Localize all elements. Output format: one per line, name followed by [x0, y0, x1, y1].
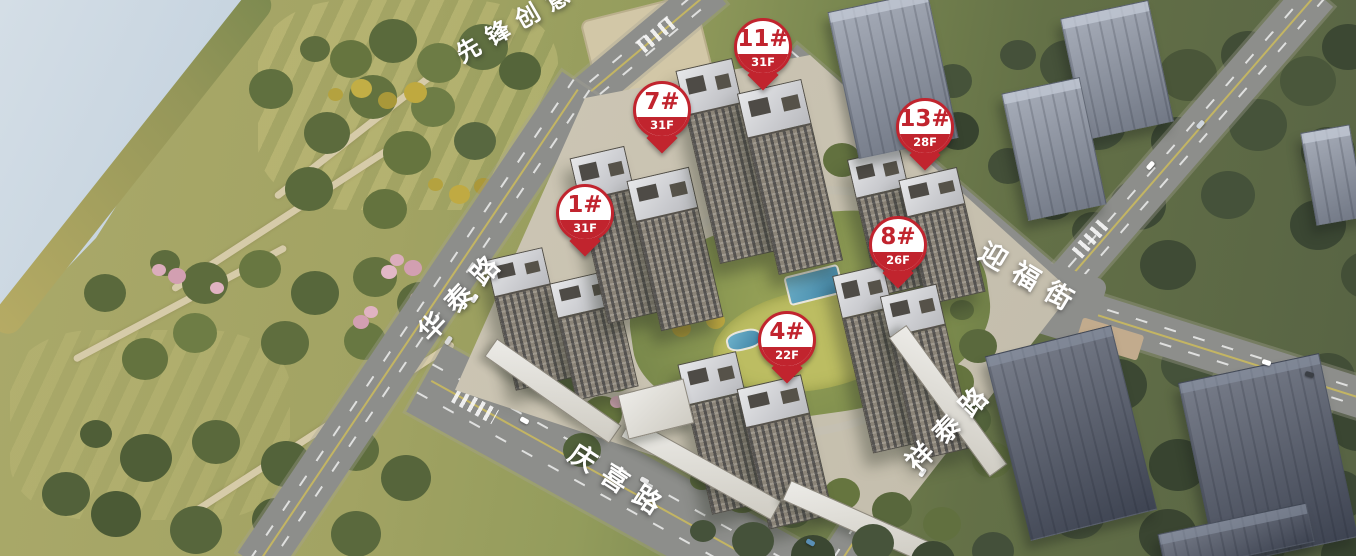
pin-building-number: 1#	[559, 193, 611, 218]
pin-head: 13# 28F	[896, 98, 954, 156]
lawn-stripes-bottom	[10, 330, 290, 520]
blossom-trees	[210, 282, 224, 294]
pin-head: 7# 31F	[633, 81, 691, 139]
building-pin-8[interactable]: 8# 26F	[869, 216, 927, 290]
park-trees-top	[300, 36, 330, 62]
building-pin-13[interactable]: 13# 28F	[896, 98, 954, 172]
park-trees-bottom	[80, 420, 112, 448]
pin-floor-count: 26F	[872, 252, 924, 271]
pin-head: 11# 31F	[734, 18, 792, 76]
pin-building-number: 11#	[737, 27, 789, 52]
site-plan-map: 先锋创意华泰路迎福街祥泰路庆喜路 1# 31F 4# 22F 7# 31F 8#…	[0, 0, 1356, 556]
pin-floor-count: 31F	[559, 220, 611, 239]
building-pin-1[interactable]: 1# 31F	[556, 184, 614, 258]
blossom-trees	[152, 264, 166, 276]
blossom-trees	[390, 254, 404, 266]
yellow-trees	[428, 178, 443, 191]
pin-floor-count: 28F	[899, 134, 951, 153]
city-forest-top-right	[1000, 40, 1036, 70]
building-pin-4[interactable]: 4# 22F	[758, 311, 816, 385]
site-trees-east	[950, 300, 974, 320]
pin-head: 1# 31F	[556, 184, 614, 242]
yellow-trees	[328, 88, 343, 101]
pin-head: 4# 22F	[758, 311, 816, 369]
blossom-trees	[364, 306, 378, 318]
pin-building-number: 13#	[899, 107, 951, 132]
pin-floor-count: 22F	[761, 347, 813, 366]
pin-building-number: 4#	[761, 320, 813, 345]
building-pin-11[interactable]: 11# 31F	[734, 18, 792, 92]
pin-building-number: 7#	[636, 90, 688, 115]
pin-building-number: 8#	[872, 225, 924, 250]
street-trees-south	[690, 520, 716, 542]
pin-floor-count: 31F	[737, 54, 789, 73]
building-pin-7[interactable]: 7# 31F	[633, 81, 691, 155]
pin-floor-count: 31F	[636, 117, 688, 136]
pin-head: 8# 26F	[869, 216, 927, 274]
